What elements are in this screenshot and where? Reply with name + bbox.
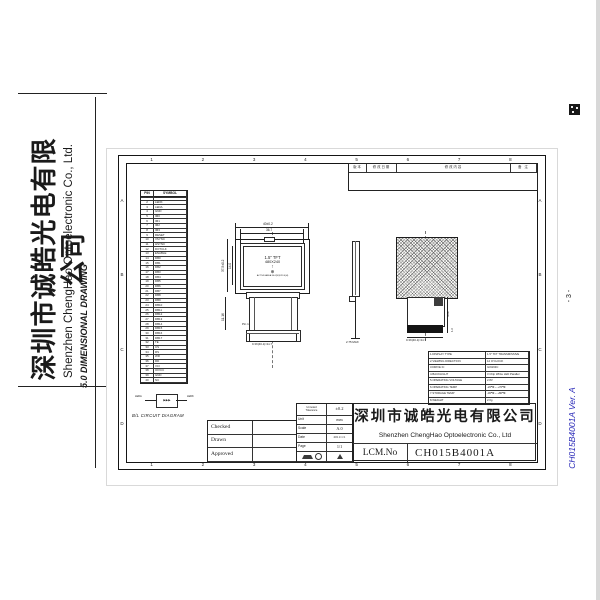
led-diode-icon: ▶▶▶ [163,399,170,402]
border-number: 4 [304,157,307,162]
page-number: - 3 - [566,278,573,314]
border-number: 6 [407,462,410,467]
dim-side-thickness: 2.75 MAX [346,341,359,344]
drawing-info-block: Unnoted Tolerance ±0.2 Unit mm Scale A.0… [296,403,354,463]
dim-front-height: 37.5±0.2 [222,260,225,272]
border-number: 7 [458,462,461,467]
signature-label-cell: Checked [208,421,253,435]
doc-code-vertical: CH015B4001A Ver. A [567,354,577,502]
projection-circle-icon [315,453,322,460]
header-rule-top [18,93,107,94]
ext-line [249,334,250,341]
ext-line [303,229,304,243]
border-number: 1 [150,157,153,162]
date-value-cell: 2011/1/1 [327,434,353,443]
connector-inner-line [246,333,299,334]
dim-va-height: 14.0 [229,263,232,269]
spec-table: 1.DISPLAY TYPE 1.5" TFT TRANSMISSIVE 2.V… [428,351,530,405]
dim-line [407,337,443,338]
border-letter: A [538,198,541,203]
signature-label-cell: Approved [208,448,253,462]
signature-block: Checked Drawn Approved [207,420,298,463]
unit-label-cell: Unit [297,416,327,425]
dim-front-width: 40±0.2 [263,223,273,226]
scale-value-cell: A.0 [327,425,353,434]
dim-bezel-width: 36.7 [266,229,272,232]
side-fpc-line [355,300,356,338]
border-number: 5 [355,157,358,162]
ext-line [240,229,241,243]
side-inner-line [355,241,356,295]
scale-label-cell: Scale [297,425,327,434]
dim-rear-d2: 1.6 [451,328,454,332]
dim-front-pitch: 0.3X(40-1)=11.7 [252,343,272,346]
border-number: 1 [150,462,153,467]
scanned-drawing-page: 深圳市诚皓光电有限公司 Shenzhen ChengHao Optoelectr… [0,0,600,600]
ext-line [296,334,297,341]
border-number: 2 [202,462,205,467]
bl-left-label: LEDA [135,396,142,399]
bl-led-box: ▶▶▶ [156,394,178,408]
border-letter: B [538,272,541,277]
bl-right-label: LEDK [187,396,194,399]
pin-rows: 1 GND 2 LEDK 3 LEDA 4 GND 5 IM0 6 IM1 7 … [140,196,188,384]
border-letter: A [120,198,123,203]
title-block-company-cn: 深圳市诚皓光电有限公司 [353,406,537,429]
border-letter: D [120,421,123,426]
side-view-outline [352,241,360,297]
revision-header-cell: 版本 [349,164,367,173]
rear-fpc-stiffener [434,297,443,306]
border-number: 8 [509,157,512,162]
tolerance-label-line2: Tolerance [306,410,318,413]
border-number: 6 [407,157,410,162]
border-numbers-top: 12345678 [126,155,536,163]
front-view-active-area: 1.5" TFT 480X240 ↑ ⊕ ACTIVE AREA 30.6(W)… [243,246,302,287]
title-block-company-en: Shenzhen ChengHao Optoelectronic Co., Lt… [353,432,537,444]
company-name-en-vertical: Shenzhen ChengHao Optoelectronic Co., Lt… [63,132,76,390]
bl-wire-left [145,400,156,401]
border-number: 7 [458,157,461,162]
fpc-edge-line [254,297,255,330]
dim-fpc-height: 11.16 [222,313,225,321]
rear-view-outline [396,237,458,299]
border-number: 2 [202,157,205,162]
pin-symbol-cell: NC [154,378,187,383]
bl-wire-right [176,400,187,401]
signature-value-cell [253,435,297,449]
company-title-block: 深圳市诚皓光电有限公司 Shenzhen ChengHao Optoelectr… [352,403,536,461]
bl-circuit-caption: B/L CIRCUIT DIAGRAM [132,414,184,418]
page-label-cell: Page [297,443,327,452]
front-view-notch [264,237,275,242]
first-angle-projection-icon [302,455,313,459]
revision-header-cell: 修改日期 [367,164,397,173]
pin-number-cell: 40 [141,378,154,383]
ext-line [308,223,309,239]
section-title: 5.0 DIMENSIONAL DRAWING [80,246,90,388]
dim-line [227,239,228,292]
signature-label-cell: Drawn [208,435,253,449]
dim-rear-pitch: 0.3X(40-1)=11.7 [406,339,426,342]
warning-cell [327,452,353,462]
border-letter: C [120,347,123,352]
tolerance-value-cell: ±0.2 [327,404,353,416]
signature-value-cell [253,421,297,435]
page-value-cell: 1/1 [327,443,353,452]
revision-header-cell: 修改内容 [397,164,511,173]
scan-edge [596,0,600,600]
pin1-label: Pin 1 [242,323,249,326]
tolerance-label-cell: Unnoted Tolerance [297,404,327,416]
revision-table: 版本修改日期修改内容备 注 [348,163,538,191]
dim-line [240,233,303,234]
border-letter: C [538,347,541,352]
unit-value-cell: mm [327,416,353,425]
rear-connector-strip [407,325,443,333]
border-letter: D [538,421,541,426]
ext-line [235,223,236,239]
border-letters-left: ABCD [118,163,126,461]
side-tick [351,338,360,339]
projection-symbol-cell [297,452,327,462]
date-label-cell: Date [297,434,327,443]
border-number: 3 [253,157,256,162]
warning-triangle-icon [337,454,343,459]
lcm-no-value: CH015B4001A [407,444,537,462]
dim-rear-d1: 4.28 [447,312,450,317]
border-number: 8 [509,462,512,467]
lcm-no-label: LCM.No [353,444,408,462]
border-number: 5 [355,462,358,467]
header-rule-bottom [18,386,107,387]
grid-stamp-icon [569,104,580,115]
border-letter: B [120,272,123,277]
header-rule-vertical [95,97,96,468]
signature-value-cell [253,448,297,462]
fpc-edge-line [291,297,292,330]
border-letters-right: ABCD [536,163,544,461]
active-area-note: ACTIVE AREA 30.6(W)X23.0(H) [257,275,288,279]
revision-header-cell: 备 注 [511,164,537,173]
